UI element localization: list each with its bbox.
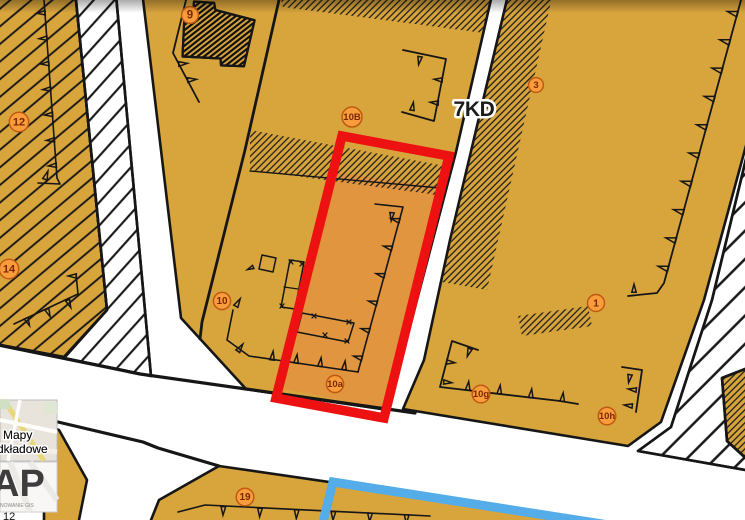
svg-text:Mapy: Mapy bbox=[3, 428, 32, 442]
svg-text:10B: 10B bbox=[343, 112, 361, 123]
svg-text:10a: 10a bbox=[327, 379, 344, 390]
svg-text:14: 14 bbox=[3, 264, 16, 276]
svg-text:7KD: 7KD bbox=[453, 98, 494, 121]
svg-text:19: 19 bbox=[239, 492, 251, 503]
svg-text:10h: 10h bbox=[599, 411, 616, 422]
svg-text:dkładowe: dkładowe bbox=[0, 442, 48, 456]
svg-text:10: 10 bbox=[216, 296, 228, 307]
svg-text:1: 1 bbox=[593, 298, 599, 310]
svg-text:12: 12 bbox=[13, 117, 25, 129]
svg-text:AP: AP bbox=[0, 463, 45, 505]
svg-text:NOWANIE GIS: NOWANIE GIS bbox=[0, 503, 34, 509]
svg-text:3: 3 bbox=[533, 80, 538, 91]
svg-text:10g: 10g bbox=[473, 389, 490, 400]
svg-text:12: 12 bbox=[3, 511, 15, 520]
